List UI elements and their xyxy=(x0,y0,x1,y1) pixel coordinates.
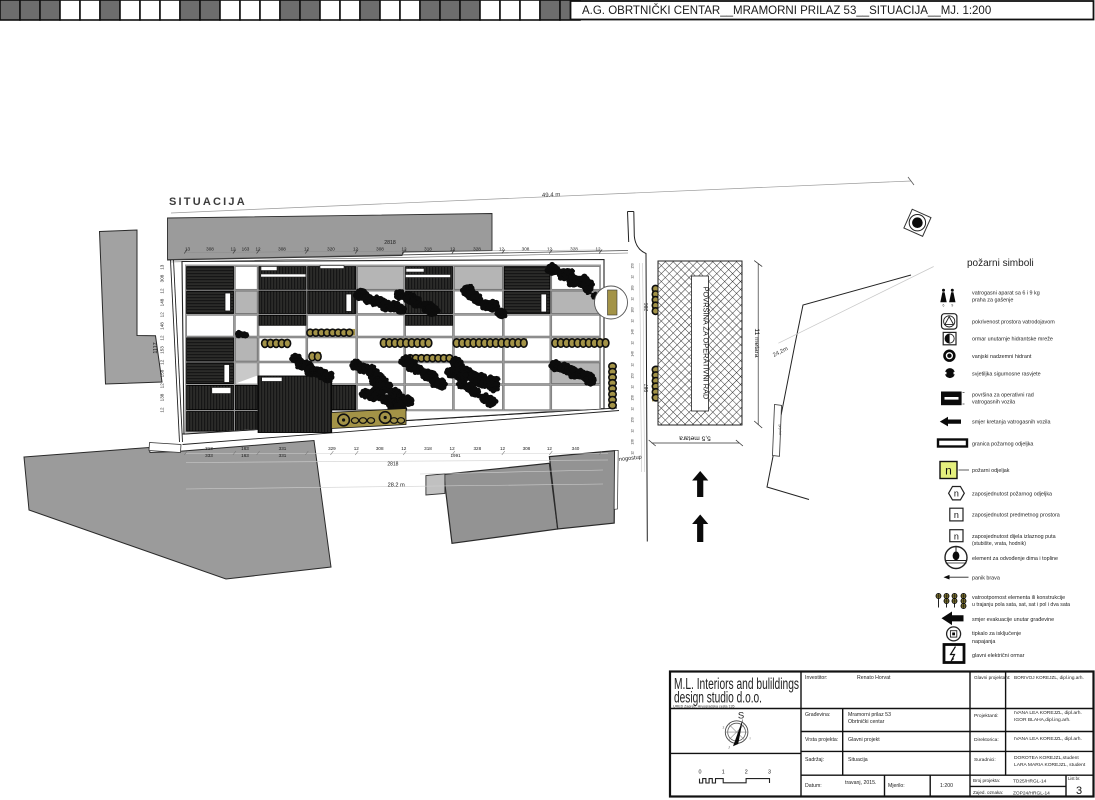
svg-text:Zajed. oznaka:: Zajed. oznaka: xyxy=(973,790,1003,795)
svg-text:158: 158 xyxy=(631,395,635,401)
svg-text:IGOR BLAHA,dipl.ing.arh.: IGOR BLAHA,dipl.ing.arh. xyxy=(1014,717,1071,723)
svg-text:331: 331 xyxy=(279,446,287,451)
svg-text:Sadržaj:: Sadržaj: xyxy=(805,757,824,763)
svg-text:12: 12 xyxy=(500,446,506,451)
svg-text:12: 12 xyxy=(631,407,635,411)
svg-text:318: 318 xyxy=(424,247,432,252)
svg-text:zaposjednutost požarnog odjelj: zaposjednutost požarnog odjeljka xyxy=(972,492,1052,498)
svg-text:ZOP24/HRGL-14: ZOP24/HRGL-14 xyxy=(1013,791,1050,797)
svg-text:Mjerilo:: Mjerilo: xyxy=(888,783,905,789)
svg-text:12: 12 xyxy=(160,312,165,318)
svg-text:148: 148 xyxy=(631,351,635,357)
svg-text:286: 286 xyxy=(644,303,650,312)
svg-text:granica požarnog odjeljka: granica požarnog odjeljka xyxy=(972,442,1033,448)
svg-text:12: 12 xyxy=(401,247,407,252)
svg-text:svjetiljka sigurnosne rasvjete: svjetiljka sigurnosne rasvjete xyxy=(972,372,1041,378)
svg-text:12: 12 xyxy=(450,446,456,451)
svg-text:Glavni projekt: Glavni projekt xyxy=(848,737,880,743)
svg-text:12: 12 xyxy=(160,383,165,389)
svg-text:vatrootpornost elementa ili ko: vatrootpornost elementa ili konstrukcije xyxy=(972,595,1065,601)
svg-text:2: 2 xyxy=(745,770,748,776)
svg-text:308: 308 xyxy=(160,274,165,282)
svg-text:1991: 1991 xyxy=(450,453,461,458)
svg-text:11 metara: 11 metara xyxy=(753,328,760,358)
svg-text:Renato Horvat: Renato Horvat xyxy=(857,675,891,681)
svg-text:n: n xyxy=(954,510,959,520)
svg-text:12: 12 xyxy=(631,319,635,323)
svg-text:IVANA LEA KOREJZL, dipl.arh.: IVANA LEA KOREJZL, dipl.arh. xyxy=(1014,710,1082,716)
svg-text:12: 12 xyxy=(631,363,635,367)
svg-text:2818: 2818 xyxy=(384,240,396,246)
svg-text:333: 333 xyxy=(205,453,213,458)
svg-text:Mramorni prilaz 53: Mramorni prilaz 53 xyxy=(848,712,891,718)
svg-text:308: 308 xyxy=(376,247,384,252)
svg-text:S: S xyxy=(738,711,744,722)
svg-text:površina za operativni rad: površina za operativni rad xyxy=(972,393,1034,399)
svg-text:12: 12 xyxy=(354,446,360,451)
svg-text:glavni električni ormar: glavni električni ormar xyxy=(972,653,1025,659)
svg-text:12: 12 xyxy=(631,297,635,301)
svg-text:163: 163 xyxy=(241,453,249,458)
svg-text:prijelaz: prijelaz xyxy=(778,424,783,435)
svg-text:Projektanti:: Projektanti: xyxy=(974,713,998,719)
svg-text:Datum:: Datum: xyxy=(805,783,822,789)
svg-text:12: 12 xyxy=(160,359,165,365)
svg-text:napajanja: napajanja xyxy=(972,639,995,645)
svg-text:163: 163 xyxy=(242,247,250,252)
svg-text:A.G. OBRTNIČKI CENTAR__MRAMORN: A.G. OBRTNIČKI CENTAR__MRAMORNI PRILAZ 5… xyxy=(582,4,991,17)
svg-text:BORIVOJ KOREJZL, dipl.ing.arh.: BORIVOJ KOREJZL, dipl.ing.arh. xyxy=(1014,675,1084,680)
svg-text:Situacija: Situacija xyxy=(848,757,868,763)
svg-text:travanj, 2015.: travanj, 2015. xyxy=(845,780,876,786)
svg-text:12: 12 xyxy=(547,446,553,451)
svg-text:(stubište, vrata, hodnik): (stubište, vrata, hodnik) xyxy=(972,541,1026,547)
svg-text:z: z xyxy=(723,726,725,730)
svg-text:148: 148 xyxy=(631,329,635,335)
svg-text:vatrogasnih vozila: vatrogasnih vozila xyxy=(972,400,1015,406)
svg-text:12: 12 xyxy=(631,429,635,433)
svg-text:163: 163 xyxy=(631,307,635,313)
svg-text:12: 12 xyxy=(160,288,165,294)
svg-text:zaposjednutost predmetnog pros: zaposjednutost predmetnog prostora xyxy=(972,513,1060,519)
svg-text:138: 138 xyxy=(160,393,165,401)
svg-text:požarni simboli: požarni simboli xyxy=(967,258,1034,269)
svg-text:13: 13 xyxy=(185,247,191,252)
svg-text:n: n xyxy=(954,489,959,499)
svg-text:2818: 2818 xyxy=(387,462,398,468)
svg-text:308: 308 xyxy=(376,446,384,451)
svg-text:LARA MARIA KOREJZL, student: LARA MARIA KOREJZL, student xyxy=(1014,762,1086,768)
svg-text:328: 328 xyxy=(570,247,578,252)
svg-text:Vrsta projekta:: Vrsta projekta: xyxy=(805,737,838,743)
svg-text:POVRŠINA ZA OPERATIVNI RAD: POVRŠINA ZA OPERATIVNI RAD xyxy=(702,287,711,400)
svg-text:Građevina:: Građevina: xyxy=(805,712,830,718)
svg-text:element za odvođenje dima i to: element za odvođenje dima i topline xyxy=(972,556,1058,562)
svg-text:smjer kretanja vatrogasnih voz: smjer kretanja vatrogasnih vozila xyxy=(972,420,1051,426)
svg-text:313: 313 xyxy=(205,446,213,451)
svg-text:308: 308 xyxy=(206,247,214,252)
svg-text:pokrivenost prostora vatrodoja: pokrivenost prostora vatrodojavom xyxy=(972,320,1055,326)
svg-text:153: 153 xyxy=(160,346,165,354)
svg-text:panik brava: panik brava xyxy=(972,576,1000,582)
svg-text:24,2m: 24,2m xyxy=(772,346,789,359)
svg-text:340: 340 xyxy=(572,446,580,451)
svg-text:praha za gašenje: praha za gašenje xyxy=(972,298,1013,304)
svg-text:požarni odjeljak: požarni odjeljak xyxy=(972,468,1010,474)
svg-text:zaposjednutost dijela izlaznog: zaposjednutost dijela izlaznog puta xyxy=(972,534,1056,540)
svg-text:153: 153 xyxy=(631,373,635,379)
svg-text:148: 148 xyxy=(160,322,165,330)
svg-text:0: 0 xyxy=(699,770,702,776)
svg-text:329: 329 xyxy=(328,446,336,451)
svg-text:13: 13 xyxy=(160,264,165,270)
svg-text:SITUACIJA: SITUACIJA xyxy=(169,196,247,208)
svg-text:J: J xyxy=(728,746,730,750)
svg-text:328: 328 xyxy=(473,446,481,451)
svg-text:138: 138 xyxy=(631,439,635,445)
svg-text:12: 12 xyxy=(631,341,635,345)
svg-text:Investitor:: Investitor: xyxy=(805,675,828,681)
svg-text:12: 12 xyxy=(255,247,261,252)
svg-text:163: 163 xyxy=(241,446,249,451)
svg-text:331: 331 xyxy=(279,453,287,458)
svg-text:u trajanju pola sata, sat, sat: u trajanju pola sata, sat, sat i pol i d… xyxy=(972,602,1070,608)
svg-text:5,5 metara: 5,5 metara xyxy=(679,435,711,442)
svg-text:158: 158 xyxy=(160,369,165,377)
svg-text:150: 150 xyxy=(631,263,635,269)
svg-text:150: 150 xyxy=(631,417,635,423)
svg-text:12: 12 xyxy=(160,407,165,413)
svg-text:3: 3 xyxy=(1076,785,1082,797)
svg-text:TD25/HRGL-14: TD25/HRGL-14 xyxy=(1013,779,1047,785)
svg-text:12: 12 xyxy=(595,247,601,252)
svg-text:vanjski nadzemni hidrant: vanjski nadzemni hidrant xyxy=(972,354,1032,360)
svg-text:169: 169 xyxy=(631,285,635,291)
svg-text:Suradnici:: Suradnici: xyxy=(974,757,996,763)
svg-text:List br.: List br. xyxy=(1068,776,1080,781)
svg-text:49.4 m: 49.4 m xyxy=(542,192,561,199)
svg-text:6: 6 xyxy=(943,304,945,308)
svg-text:URED Zagreb, Hrvogradska cesta: URED Zagreb, Hrvogradska cesta 135 xyxy=(673,704,735,708)
svg-text:n: n xyxy=(945,464,952,478)
svg-text:28.2 m: 28.2 m xyxy=(388,483,405,489)
svg-text:12: 12 xyxy=(401,446,407,451)
svg-text:IVANA LEA KOREJZL, dipl.arh.: IVANA LEA KOREJZL, dipl.arh. xyxy=(1014,736,1082,742)
svg-text:12: 12 xyxy=(160,335,165,341)
svg-text:12: 12 xyxy=(304,247,310,252)
svg-text:1:200: 1:200 xyxy=(940,783,953,789)
svg-text:DOROTEA KOREJZL,student: DOROTEA KOREJZL,student xyxy=(1014,755,1079,761)
svg-text:Glavni projektant:: Glavni projektant: xyxy=(974,675,1010,680)
svg-text:3: 3 xyxy=(768,770,771,776)
svg-text:ormar unutarnje hidrantske mre: ormar unutarnje hidrantske mreže xyxy=(972,337,1053,343)
svg-text:tipkalo za isključenje: tipkalo za isključenje xyxy=(972,631,1021,637)
svg-text:308: 308 xyxy=(522,247,530,252)
svg-text:12: 12 xyxy=(631,451,635,455)
svg-text:320: 320 xyxy=(327,247,335,252)
svg-text:1117: 1117 xyxy=(153,342,159,353)
svg-text:318: 318 xyxy=(424,446,432,451)
svg-text:1: 1 xyxy=(722,770,725,776)
svg-text:12: 12 xyxy=(631,385,635,389)
svg-text:vatrogasni aparat sa 6 i 9 kg: vatrogasni aparat sa 6 i 9 kg xyxy=(972,291,1040,297)
svg-text:n: n xyxy=(954,531,959,541)
svg-text:9: 9 xyxy=(951,304,953,308)
svg-text:12: 12 xyxy=(631,275,635,279)
svg-text:nogostup: nogostup xyxy=(619,455,643,463)
svg-text:Broj projekta:: Broj projekta: xyxy=(973,778,1000,783)
svg-text:Obrtnički centar: Obrtnički centar xyxy=(848,719,885,725)
svg-text:308: 308 xyxy=(523,446,531,451)
svg-text:Direktorica:: Direktorica: xyxy=(974,737,999,743)
svg-text:148: 148 xyxy=(160,298,165,306)
svg-text:308: 308 xyxy=(278,247,286,252)
svg-text:smjer evakuacije unutar građev: smjer evakuacije unutar građevine xyxy=(972,617,1054,623)
